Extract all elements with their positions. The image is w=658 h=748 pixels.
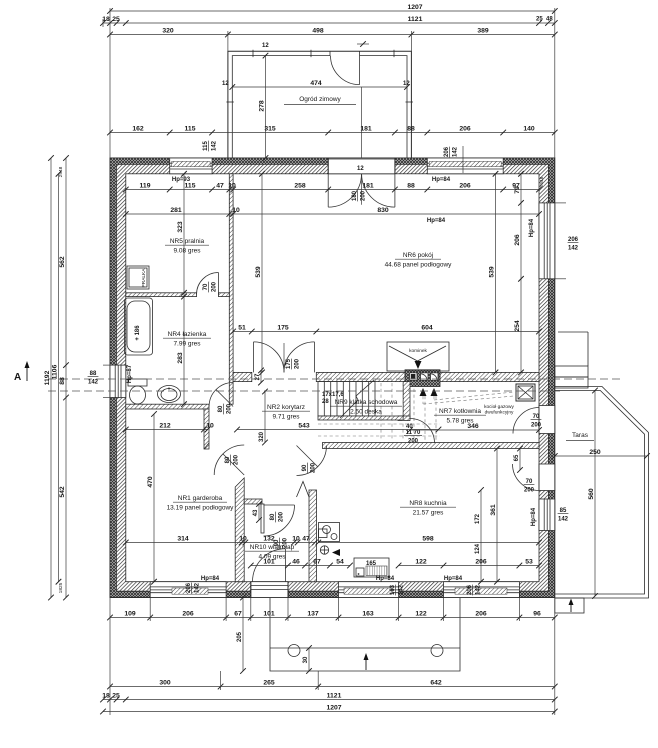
svg-text:119: 119 — [140, 183, 151, 190]
svg-text:474: 474 — [310, 80, 322, 87]
svg-text:25: 25 — [112, 16, 120, 23]
svg-text:206: 206 — [467, 584, 473, 595]
svg-text:206: 206 — [568, 237, 579, 243]
svg-text:265: 265 — [263, 680, 275, 687]
svg-text:163: 163 — [390, 584, 396, 595]
svg-text:142: 142 — [212, 140, 218, 151]
svg-text:Hp=84: Hp=84 — [376, 576, 395, 582]
svg-text:88: 88 — [407, 183, 415, 190]
svg-text:206: 206 — [444, 146, 450, 157]
svg-text:206: 206 — [186, 582, 192, 593]
svg-text:1121: 1121 — [408, 16, 423, 23]
svg-text:1192: 1192 — [44, 370, 51, 385]
svg-text:54: 54 — [336, 559, 344, 566]
svg-text:314: 314 — [177, 536, 189, 543]
svg-text:560: 560 — [588, 488, 595, 500]
svg-text:115: 115 — [203, 141, 209, 151]
svg-text:17x17,6: 17x17,6 — [322, 392, 344, 398]
svg-text:124: 124 — [475, 543, 481, 554]
svg-text:A: A — [14, 372, 21, 383]
svg-text:10: 10 — [232, 207, 240, 214]
svg-text:132: 132 — [263, 536, 275, 543]
svg-text:142: 142 — [476, 584, 482, 595]
svg-text:320: 320 — [162, 28, 174, 35]
svg-text:315: 315 — [264, 126, 276, 133]
svg-text:NR5 pralnia: NR5 pralnia — [170, 238, 205, 245]
svg-text:NR10 wiatrołap: NR10 wiatrołap — [250, 544, 295, 551]
svg-text:10: 10 — [228, 183, 236, 190]
svg-text:Hp=84: Hp=84 — [432, 177, 451, 183]
svg-text:206: 206 — [475, 559, 487, 566]
svg-text:NR6 pokój: NR6 pokój — [403, 252, 433, 259]
svg-text:122: 122 — [415, 611, 427, 618]
svg-text:12: 12 — [357, 166, 364, 172]
svg-text:142: 142 — [88, 380, 99, 386]
svg-text:539: 539 — [489, 266, 496, 278]
svg-text:562: 562 — [59, 256, 66, 268]
svg-text:dwufunkcyjny: dwufunkcyjny — [485, 410, 514, 416]
svg-text:kocioł gazowy: kocioł gazowy — [484, 404, 514, 410]
svg-text:101: 101 — [263, 611, 275, 618]
svg-text:70: 70 — [203, 283, 209, 290]
svg-text:12: 12 — [403, 81, 410, 87]
svg-text:67: 67 — [313, 559, 321, 566]
svg-text:Hp=84: Hp=84 — [427, 218, 446, 224]
svg-text:200: 200 — [279, 511, 285, 522]
svg-text:122: 122 — [415, 559, 427, 566]
svg-text:115: 115 — [185, 183, 196, 190]
svg-text:470: 470 — [147, 476, 154, 488]
svg-text:25: 25 — [536, 17, 543, 23]
svg-text:142: 142 — [453, 146, 459, 157]
svg-text:kominek: kominek — [409, 348, 427, 354]
svg-text:323: 323 — [177, 221, 184, 233]
svg-text:137: 137 — [307, 611, 319, 618]
svg-text:11 70: 11 70 — [406, 430, 421, 436]
svg-text:PRALKA: PRALKA — [141, 268, 147, 288]
svg-text:175: 175 — [286, 358, 292, 369]
svg-text:2548: 2548 — [539, 176, 545, 187]
svg-text:205: 205 — [237, 631, 243, 642]
svg-text:206: 206 — [459, 126, 471, 133]
svg-text:206: 206 — [475, 611, 487, 618]
svg-text:162: 162 — [132, 126, 144, 133]
svg-text:70: 70 — [526, 479, 533, 485]
svg-text:10: 10 — [206, 423, 214, 430]
svg-text:181: 181 — [360, 126, 372, 133]
svg-text:88: 88 — [90, 371, 97, 377]
svg-text:48: 48 — [546, 17, 553, 23]
svg-text:1207: 1207 — [326, 705, 341, 712]
svg-text:43: 43 — [253, 509, 259, 516]
svg-text:79: 79 — [514, 186, 521, 194]
svg-text:320: 320 — [259, 431, 265, 442]
svg-text:Hp=93: Hp=93 — [172, 177, 191, 183]
svg-text:47: 47 — [302, 536, 310, 543]
svg-text:200: 200 — [227, 403, 233, 414]
svg-text:67: 67 — [234, 611, 242, 618]
svg-text:21.57 gres: 21.57 gres — [413, 509, 444, 516]
svg-text:2548: 2548 — [58, 166, 64, 177]
svg-text:4.09 gres: 4.09 gres — [258, 553, 286, 560]
svg-text:Hp=84: Hp=84 — [531, 507, 537, 526]
svg-text:NR7 kotłownia: NR7 kotłownia — [439, 408, 481, 415]
svg-text:140: 140 — [523, 126, 535, 133]
svg-text:5.78 gres: 5.78 gres — [446, 417, 474, 424]
svg-text:200: 200 — [295, 358, 301, 369]
svg-text:200: 200 — [531, 423, 542, 429]
svg-text:142: 142 — [399, 584, 405, 595]
svg-text:80: 80 — [225, 456, 231, 463]
svg-text:206: 206 — [459, 183, 471, 190]
svg-text:200: 200 — [234, 454, 240, 465]
svg-text:1121: 1121 — [327, 693, 342, 700]
svg-text:70: 70 — [533, 414, 540, 420]
svg-text:142: 142 — [558, 517, 569, 523]
svg-text:115: 115 — [185, 126, 196, 133]
svg-text:1106: 1106 — [52, 364, 59, 379]
svg-text:80: 80 — [270, 513, 276, 520]
svg-text:598: 598 — [422, 536, 434, 543]
svg-text:142: 142 — [195, 582, 201, 593]
svg-text:10: 10 — [239, 536, 247, 543]
svg-text:10: 10 — [292, 536, 300, 543]
svg-text:Hp=87: Hp=87 — [127, 364, 133, 383]
svg-text:25: 25 — [112, 693, 120, 700]
svg-text:18: 18 — [102, 16, 110, 23]
svg-text:254: 254 — [514, 320, 521, 332]
svg-text:30: 30 — [303, 656, 309, 663]
svg-text:NR8 kuchnia: NR8 kuchnia — [409, 500, 447, 507]
svg-text:53: 53 — [525, 559, 533, 566]
svg-text:1825: 1825 — [58, 582, 64, 593]
svg-text:51: 51 — [238, 325, 246, 332]
svg-text:47: 47 — [216, 183, 224, 190]
svg-text:172: 172 — [475, 513, 481, 524]
svg-text:206: 206 — [182, 611, 194, 618]
svg-text:543: 543 — [298, 423, 310, 430]
svg-text:12: 12 — [222, 81, 229, 87]
svg-text:1207: 1207 — [407, 4, 422, 11]
svg-text:85: 85 — [560, 508, 567, 514]
svg-text:539: 539 — [255, 266, 262, 278]
svg-text:46: 46 — [292, 559, 300, 566]
svg-text:389: 389 — [477, 28, 489, 35]
svg-text:80: 80 — [218, 405, 224, 412]
svg-text:498: 498 — [312, 28, 324, 35]
svg-text:200: 200 — [311, 462, 317, 473]
svg-text:88: 88 — [59, 377, 66, 385]
svg-text:200: 200 — [524, 488, 535, 494]
svg-text:NR9 klatka schodowa: NR9 klatka schodowa — [335, 399, 398, 406]
svg-text:300: 300 — [159, 680, 171, 687]
svg-text:18: 18 — [102, 693, 110, 700]
svg-text:175: 175 — [277, 325, 289, 332]
svg-text:12: 12 — [262, 43, 269, 49]
svg-text:7.99 gres: 7.99 gres — [173, 340, 201, 347]
svg-text:96: 96 — [533, 611, 541, 618]
svg-text:NR2 korytarz: NR2 korytarz — [267, 404, 305, 411]
svg-text:13.19 panel podłogowy: 13.19 panel podłogowy — [167, 504, 235, 511]
svg-text:+ 186: + 186 — [135, 325, 141, 341]
svg-text:9.08 gres: 9.08 gres — [173, 247, 201, 254]
svg-text:604: 604 — [421, 325, 433, 332]
svg-text:9.71 gres: 9.71 gres — [272, 413, 300, 420]
svg-text:2.50 deska: 2.50 deska — [350, 408, 382, 415]
svg-text:Taras: Taras — [572, 432, 589, 439]
svg-text:NR1 garderoba: NR1 garderoba — [178, 495, 223, 502]
svg-text:642: 642 — [430, 680, 442, 687]
svg-text:206: 206 — [514, 234, 521, 246]
svg-text:281: 281 — [170, 207, 182, 214]
svg-text:200: 200 — [212, 281, 218, 292]
svg-text:200: 200 — [408, 439, 419, 445]
svg-text:90: 90 — [302, 464, 308, 471]
svg-text:44.68 panel podłogowy: 44.68 panel podłogowy — [385, 261, 453, 268]
svg-text:163: 163 — [362, 611, 374, 618]
svg-text:Hp=84: Hp=84 — [529, 218, 535, 237]
svg-text:542: 542 — [59, 486, 66, 498]
svg-text:Hp=84: Hp=84 — [444, 576, 463, 582]
svg-text:181: 181 — [362, 183, 374, 190]
svg-text:Hp=84: Hp=84 — [201, 576, 220, 582]
svg-text:278: 278 — [259, 100, 266, 112]
svg-text:NR4 łazienka: NR4 łazienka — [168, 331, 207, 338]
svg-text:180: 180 — [352, 190, 358, 201]
svg-text:830: 830 — [377, 207, 389, 214]
svg-text:283: 283 — [177, 352, 184, 364]
svg-text:88: 88 — [407, 126, 415, 133]
svg-text:142: 142 — [568, 246, 579, 252]
svg-text:28: 28 — [322, 399, 329, 405]
svg-text:258: 258 — [294, 183, 306, 190]
svg-text:109: 109 — [124, 611, 136, 618]
svg-text:361: 361 — [490, 504, 497, 516]
svg-text:65: 65 — [514, 454, 520, 461]
svg-text:Ogród zimowy: Ogród zimowy — [299, 96, 341, 103]
svg-text:212: 212 — [159, 423, 171, 430]
svg-text:200: 200 — [361, 190, 367, 201]
